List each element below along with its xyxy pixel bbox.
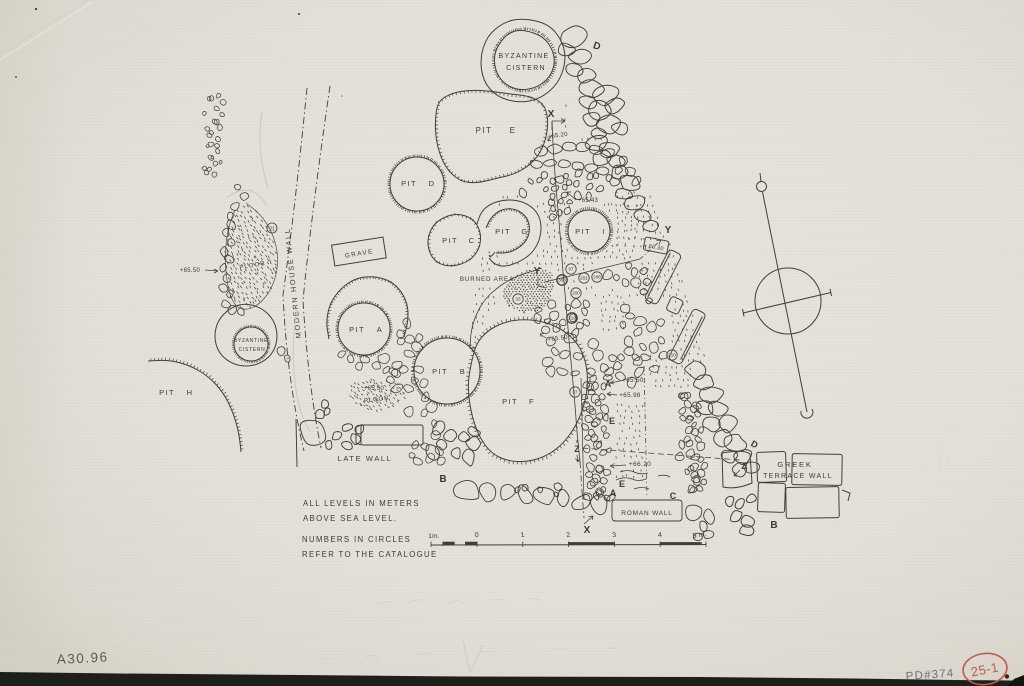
svg-text:G: G [521, 227, 528, 236]
svg-text:D: D [429, 179, 436, 188]
svg-text:206: 206 [593, 275, 601, 280]
svg-text:F: F [529, 397, 535, 406]
svg-text:ALL LEVELS IN METERS: ALL LEVELS IN METERS [303, 499, 420, 508]
svg-text:C: C [670, 491, 677, 501]
svg-text:+65.50: +65.50 [180, 268, 201, 274]
svg-text:I: I [602, 227, 605, 236]
svg-text:A: A [605, 379, 612, 389]
svg-text:A30.96: A30.96 [56, 649, 109, 667]
svg-text:NUMBERS IN CIRCLES: NUMBERS IN CIRCLES [302, 535, 411, 544]
svg-text:PIT: PIT [442, 236, 458, 245]
svg-text:GREEK: GREEK [777, 460, 812, 469]
svg-text:TERRACE WALL: TERRACE WALL [763, 473, 833, 480]
svg-text:+65.98: +65.98 [619, 392, 641, 399]
svg-text:PIT: PIT [502, 397, 518, 406]
svg-text:+65.50: +65.50 [622, 377, 644, 384]
svg-text:Z: Z [574, 444, 580, 454]
svg-text:PIT: PIT [476, 126, 493, 135]
svg-text:X: X [548, 109, 555, 120]
svg-text:303: 303 [558, 278, 566, 283]
svg-text:PIT: PIT [495, 227, 511, 236]
svg-text:219: 219 [568, 316, 576, 321]
svg-text:Y: Y [665, 225, 672, 236]
svg-text:C: C [469, 236, 476, 245]
svg-text:PIT: PIT [349, 325, 365, 334]
svg-text:33: 33 [515, 297, 521, 302]
svg-text:Z: Z [741, 461, 747, 471]
svg-text:37: 37 [572, 390, 578, 395]
svg-text:A: A [610, 488, 617, 498]
svg-text:PIT: PIT [432, 367, 448, 376]
svg-text:C: C [678, 391, 685, 401]
svg-text:LATE WALL: LATE WALL [338, 454, 393, 463]
svg-text:PIT: PIT [401, 179, 417, 188]
svg-text:201: 201 [580, 276, 588, 281]
svg-text:REFER TO THE CATALOGUE: REFER TO THE CATALOGUE [302, 550, 438, 559]
svg-text:ABOVE SEA LEVEL.: ABOVE SEA LEVEL. [303, 514, 397, 523]
svg-text:97: 97 [568, 267, 574, 272]
svg-text:CISTERN: CISTERN [239, 347, 266, 353]
svg-text:E: E [510, 126, 517, 135]
svg-text:21: 21 [269, 227, 275, 233]
svg-text:ROMAN WALL: ROMAN WALL [621, 510, 672, 517]
svg-text:A: A [377, 325, 383, 334]
svg-text:BYZANTINE: BYZANTINE [234, 338, 268, 344]
svg-text:PIT: PIT [159, 388, 175, 397]
svg-text:B: B [460, 367, 466, 376]
svg-text:B: B [439, 474, 446, 485]
svg-text:E: E [609, 416, 615, 426]
svg-text:CISTERN: CISTERN [506, 65, 546, 72]
svg-text:PIT: PIT [575, 227, 591, 236]
svg-text:+66.20: +66.20 [629, 461, 651, 468]
svg-text:BYZANTINE: BYZANTINE [499, 53, 550, 60]
svg-text:BURNED AREA: BURNED AREA [460, 276, 514, 283]
svg-text:200: 200 [572, 291, 580, 296]
svg-text:1m.: 1m. [428, 533, 439, 540]
svg-text:B: B [770, 520, 777, 531]
svg-text:X: X [584, 525, 591, 536]
svg-text:E: E [619, 479, 625, 489]
svg-text:210: 210 [668, 353, 676, 358]
svg-text:H: H [187, 388, 194, 397]
svg-text:+65.50: +65.50 [364, 386, 385, 392]
svg-text:+65.43: +65.43 [578, 198, 599, 204]
